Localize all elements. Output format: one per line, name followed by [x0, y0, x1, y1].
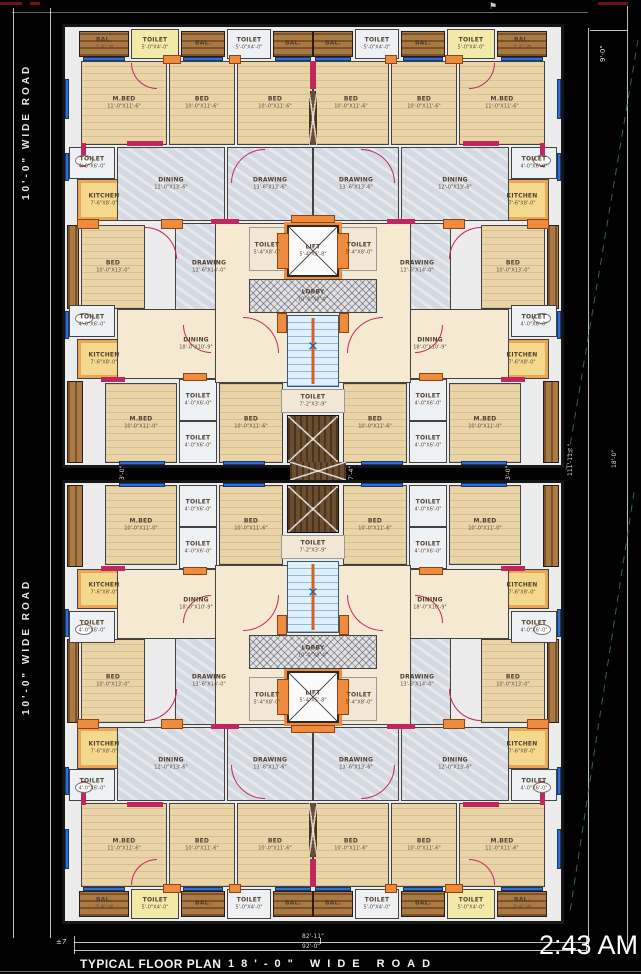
stair-cross-icon: ✕ — [308, 586, 319, 599]
right-dim-tick — [590, 30, 628, 31]
clock-overlay-time: 2:43 AM — [539, 932, 638, 959]
photo-viewer-screen: ⚑ 10'-0" WIDE ROAD 10'-0" WIDE ROAD BAL.… — [0, 0, 641, 974]
bottom-dimension-line — [74, 950, 586, 951]
bottom-road-label: 18'-0" WIDE ROAD — [228, 959, 437, 970]
right-dimension-a: 111'-11¾" — [568, 420, 574, 476]
bottom-dimension-left: ±7 — [56, 939, 66, 946]
plan-title: TYPICAL FLOOR PLAN — [80, 958, 221, 970]
right-dimension-b: 18'-0" — [612, 428, 618, 468]
right-dimension-top: 9'-0" — [600, 36, 607, 62]
dim-tick — [74, 936, 75, 954]
road-dimension-diagonals — [0, 0, 641, 974]
bottom-dimension-b: 92'-0" — [302, 944, 320, 950]
bottom-dimension-line — [74, 942, 586, 943]
bottom-dimension-a: 82'-11" — [302, 934, 324, 940]
footer-line — [0, 971, 641, 972]
stair-cross-icon: ✕ — [308, 340, 319, 353]
